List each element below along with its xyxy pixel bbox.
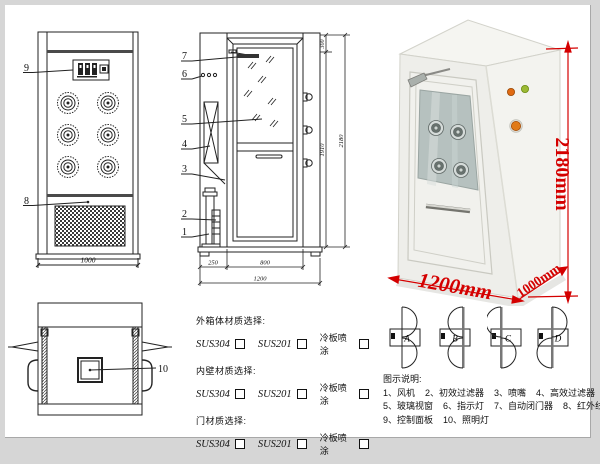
air-grille (55, 206, 125, 246)
option-label: SUS201 (258, 389, 292, 400)
outer-material-options: SUS304 SUS201 冷板喷涂 (196, 331, 382, 357)
nozzles-front (58, 93, 119, 178)
door-config-d: D (534, 305, 572, 371)
legend-line: 5、玻璃视窗 6、指示灯 7、自动闭门器 8、红外线感应器 (383, 400, 588, 414)
inner-material-title: 内壁材质选择: (196, 364, 382, 377)
dim-top-section: 300 (320, 40, 326, 50)
closer-arm-right (142, 342, 168, 351)
primary-filter (204, 102, 218, 163)
door-config-a: A (386, 305, 424, 371)
closer-arm-left (12, 342, 38, 351)
door-config-label-c: C (505, 334, 512, 344)
option-label: 冷板喷涂 (320, 431, 355, 457)
option-label: SUS304 (196, 389, 230, 400)
checkbox-outer-sus304[interactable] (235, 339, 245, 349)
callout-8: 8 (24, 196, 29, 207)
front-view-drawing: 9 8 1000 (20, 24, 180, 274)
callout-4: 4 (182, 139, 187, 150)
top-trim-band (47, 50, 133, 53)
legend-line: 1、风机 2、初效过滤器 3、喷嘴 4、高效过滤器 (383, 387, 588, 401)
door-material-options: SUS304 SUS201 冷板喷涂 (196, 431, 382, 457)
checkbox-inner-sus304[interactable] (235, 389, 245, 399)
legend-title: 图示说明: (383, 373, 588, 387)
nozzles-side (303, 93, 312, 167)
callout-10: 10 (158, 364, 168, 375)
checkbox-outer-sus201[interactable] (297, 339, 307, 349)
option-label: 冷板喷涂 (320, 381, 355, 407)
photo-dim-height: 2180mm (551, 137, 573, 211)
door-config-label-d: D (554, 334, 562, 344)
handle-left (28, 360, 38, 391)
dim-door-height: 1910 (319, 143, 326, 157)
callout-3: 3 (182, 164, 187, 175)
dim-door-width: 800 (260, 260, 271, 267)
callout-1: 1 (182, 227, 187, 238)
legend-block: 图示说明: 1、风机 2、初效过滤器 3、喷嘴 4、高效过滤器 5、玻璃视窗 6… (383, 373, 588, 427)
dim-total-width: 1200 (254, 276, 268, 283)
callout-5: 5 (182, 114, 187, 125)
callout-2: 2 (182, 209, 187, 220)
legend-line: 9、控制面板 10、照明灯 (383, 414, 588, 428)
inner-material-options: SUS304 SUS201 冷板喷涂 (196, 381, 382, 407)
product-photo: 2180mm 1200mm 1000mm (378, 8, 584, 306)
callout-7: 7 (182, 51, 187, 62)
door-config-label-b: B (452, 334, 458, 344)
checkbox-outer-coldplate[interactable] (359, 339, 369, 349)
lower-trim-band (47, 194, 133, 197)
door-config-b: B (436, 305, 474, 371)
dim-total-height: 2180 (338, 134, 345, 148)
checkbox-door-sus304[interactable] (235, 439, 245, 449)
side-glass-strip-right (133, 327, 138, 404)
checkbox-door-sus201[interactable] (297, 439, 307, 449)
glass-window-hatch (244, 56, 278, 127)
door-side (233, 44, 297, 241)
side-view-drawing: 7 6 5 4 3 2 1 300 1910 2180 250 800 1200 (178, 24, 356, 290)
outer-material-title: 外箱体材质选择: (196, 314, 382, 327)
option-label: SUS304 (196, 439, 230, 450)
control-panel (73, 60, 109, 80)
callout-9: 9 (24, 63, 29, 74)
checkbox-door-coldplate[interactable] (359, 439, 369, 449)
drawing-sheet: 9 8 1000 (0, 0, 600, 450)
material-selection-form: 外箱体材质选择: SUS304 SUS201 冷板喷涂 内壁材质选择: SUS3… (196, 314, 382, 464)
side-glass-strip-left (42, 327, 47, 404)
fan-assembly (202, 188, 220, 247)
height-dimensions (320, 33, 350, 249)
option-label: 冷板喷涂 (320, 331, 355, 357)
handle-right (142, 360, 152, 391)
door-handle (256, 155, 282, 158)
checkbox-inner-sus201[interactable] (297, 389, 307, 399)
dim-left-section: 250 (208, 260, 219, 267)
indicator-lights (201, 73, 216, 76)
door-config-c: C (487, 305, 525, 371)
option-label: SUS304 (196, 339, 230, 350)
door-material-title: 门材质选择: (196, 414, 382, 427)
top-view-drawing: 10 (8, 293, 178, 435)
door-glass (418, 90, 478, 190)
checkbox-inner-coldplate[interactable] (359, 389, 369, 399)
dim-front-width: 1000 (81, 256, 96, 265)
option-label: SUS201 (258, 339, 292, 350)
option-label: SUS201 (258, 439, 292, 450)
callout-6: 6 (182, 69, 187, 80)
door-config-label-a: A (403, 334, 410, 344)
